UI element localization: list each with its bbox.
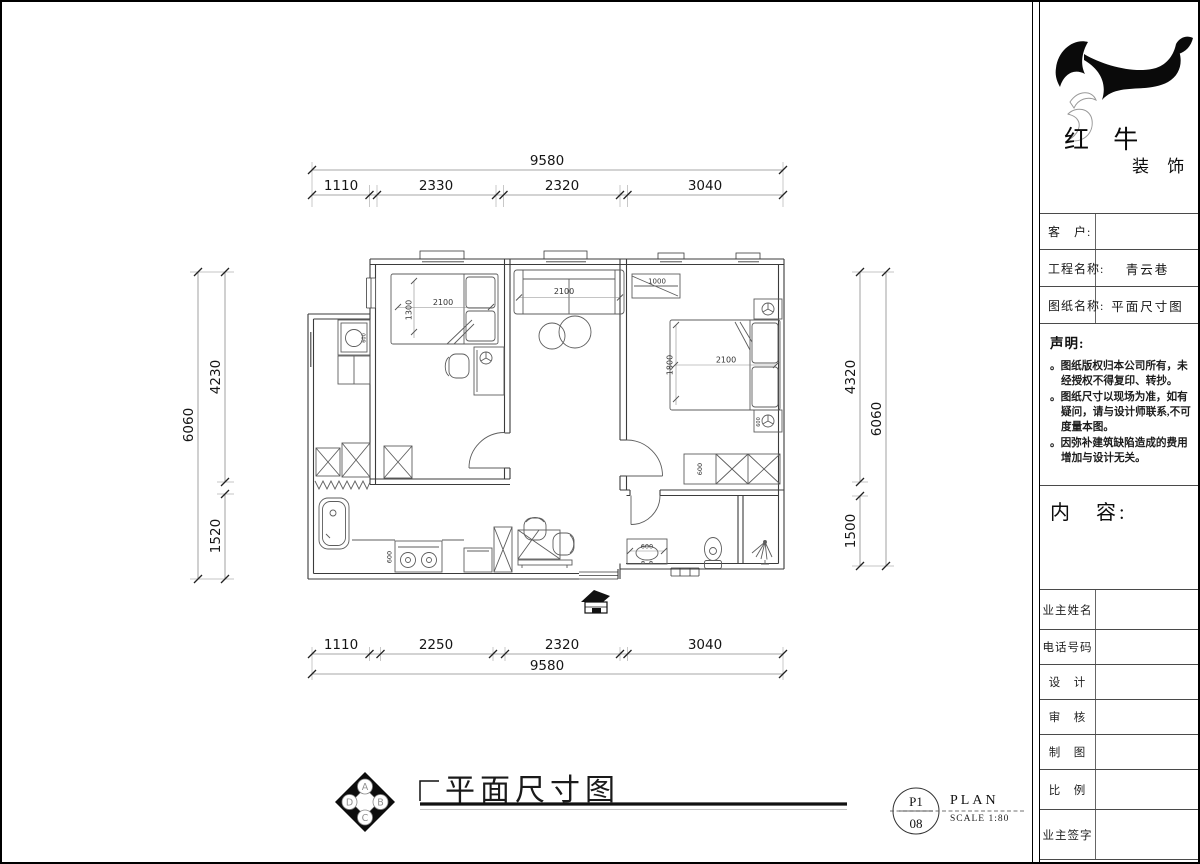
stamp-page: P1 [909, 794, 923, 809]
sheet-value: 平面尺寸图 [1096, 296, 1199, 315]
closet-label: 600 [696, 463, 704, 475]
compass-b: B [377, 798, 384, 809]
basin [319, 498, 349, 549]
dim-right-seg2: 1500 [843, 514, 859, 548]
bench [518, 560, 572, 568]
stamp-name: PLAN [950, 793, 999, 808]
entry-marker-icon [581, 590, 610, 613]
floor-plan: 2100 1300 2100 1000 2100 1800 600 600 60… [2, 2, 1032, 864]
content-section: 内 容: [1040, 486, 1199, 590]
shelf [338, 356, 370, 384]
content-heading: 内 容: [1050, 496, 1199, 525]
bed2-width-label: 2100 [716, 356, 736, 365]
balcony-folding-door [315, 481, 370, 489]
dim-bottom-seg2: 2250 [419, 637, 453, 653]
dim-bottom-overall: 9580 [530, 658, 564, 674]
sig-row-scale: 比 例 [1040, 770, 1199, 810]
chair [445, 354, 469, 378]
drawing-sheet: 2100 1300 2100 1000 2100 1800 600 600 60… [0, 0, 1200, 864]
field-row-customer: 客 户: [1040, 214, 1199, 250]
bed1-width-label: 2100 [433, 298, 453, 307]
stove-label: 600 [386, 551, 394, 563]
stamp-scale: SCALE 1:80 [950, 814, 1009, 824]
coffee-tables [539, 316, 591, 349]
sig-row-owner-name: 业主姓名 [1040, 590, 1199, 630]
bathroom-door [631, 496, 660, 525]
vanity-label: 600 [641, 543, 653, 551]
dim-top-seg4: 3040 [688, 178, 722, 194]
dim-right-overall: 6060 [869, 402, 885, 436]
shower-icon [752, 541, 772, 565]
company-name-sub: 装 饰 [1132, 152, 1191, 177]
company-logo-section: 红 牛 装 饰 [1040, 2, 1199, 214]
sofa-width-label: 2100 [554, 287, 574, 296]
customer-label: 客 户: [1040, 214, 1096, 249]
compass-c: C [362, 813, 369, 824]
dim-bottom-seg3: 2320 [545, 637, 579, 653]
field-row-project: 工程名称: 青云巷 [1040, 250, 1199, 287]
bed2-depth-label: 1800 [666, 355, 675, 375]
compass-d: D [346, 798, 353, 809]
drawing-title-block: 平面尺寸图 [420, 774, 847, 810]
statement-item: 。因弥补建筑缺陷造成的费用增加与设计无关。 [1050, 436, 1193, 466]
washer-label: 600 [362, 333, 368, 343]
dining-chair-2 [553, 533, 574, 555]
dim-left-seg1: 4230 [208, 360, 224, 394]
dim-top-seg1: 1110 [324, 178, 358, 194]
dim-right-seg1: 4320 [843, 360, 859, 394]
nightstand-label: 600 [756, 417, 762, 427]
project-label: 工程名称: [1040, 250, 1096, 286]
company-name: 红 牛 [1064, 120, 1147, 156]
sig-row-design: 设 计 [1040, 665, 1199, 700]
master-bedroom-door [627, 440, 663, 476]
ceiling-lamp-icon [480, 352, 492, 364]
stamp-total: 08 [910, 816, 923, 831]
tall-cabinet-x [494, 527, 512, 572]
drawing-title: 平面尺寸图 [445, 774, 620, 807]
wardrobe-width-label: 1000 [648, 278, 666, 286]
bedroom1-door [469, 433, 505, 469]
title-block-panel: 红 牛 装 饰 客 户: 工程名称: 青云巷 图纸名称: 平面尺寸图 声明: 。… [1032, 2, 1199, 862]
sig-row-owner-sign: 业主签字 [1040, 810, 1199, 860]
storage-x [316, 443, 370, 477]
sheet-label: 图纸名称: [1040, 287, 1096, 323]
dim-left-overall: 6060 [181, 408, 197, 442]
statement-item: 。图纸版权归本公司所有，未经授权不得复印、转抄。 [1050, 359, 1193, 389]
logo-bull-icon [1040, 2, 1200, 214]
bed1-depth-label: 1300 [405, 300, 414, 320]
dimension-lines: 9580 1110 2330 2320 3040 1110 2250 2320 … [181, 153, 894, 680]
dim-bottom-seg1: 1110 [324, 637, 358, 653]
statement-heading: 声明: [1050, 332, 1193, 352]
dim-bottom-seg4: 3040 [688, 637, 722, 653]
sig-row-phone: 电话号码 [1040, 630, 1199, 665]
cabinet-x [384, 446, 412, 478]
project-value: 青云巷 [1096, 259, 1199, 278]
desk [474, 347, 504, 395]
compass-icon: A B C D [335, 772, 395, 832]
statement-item: 。图纸尺寸以现场为准，如有疑问，请与设计师联系,不可度量本图。 [1050, 390, 1193, 435]
statement-section: 声明: 。图纸版权归本公司所有，未经授权不得复印、转抄。 。图纸尺寸以现场为准，… [1040, 324, 1199, 486]
field-row-sheet: 图纸名称: 平面尺寸图 [1040, 287, 1199, 324]
dim-top-overall: 9580 [530, 153, 564, 169]
nightstand-top [754, 299, 782, 319]
dim-top-seg3: 2320 [545, 178, 579, 194]
kitchen-cabinet [464, 548, 492, 572]
dim-top-seg2: 2330 [419, 178, 453, 194]
dim-left-seg2: 1520 [208, 519, 224, 553]
furniture [316, 270, 782, 572]
sig-row-review: 审 核 [1040, 700, 1199, 735]
gas-stove [395, 541, 442, 572]
compass-a: A [362, 782, 369, 793]
sig-row-draft: 制 图 [1040, 735, 1199, 770]
page-stamp: P1 08 PLAN SCALE 1:80 [890, 788, 1024, 834]
